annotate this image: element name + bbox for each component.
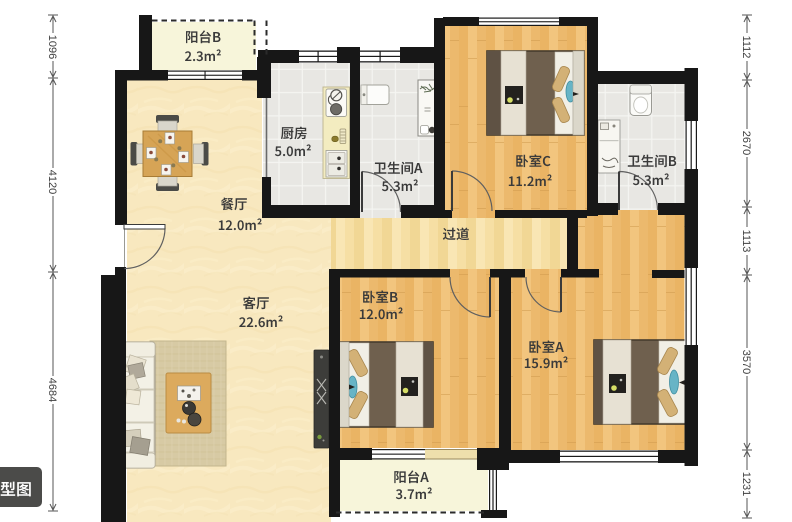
svg-text:1231: 1231: [740, 472, 752, 496]
svg-text:1096: 1096: [46, 35, 58, 59]
svg-text:1113: 1113: [740, 230, 752, 253]
svg-text:3570: 3570: [740, 350, 752, 374]
svg-text:4684: 4684: [46, 378, 58, 402]
svg-text:4120: 4120: [46, 170, 58, 194]
svg-text:1112: 1112: [740, 36, 752, 59]
svg-text:2670: 2670: [740, 131, 752, 155]
